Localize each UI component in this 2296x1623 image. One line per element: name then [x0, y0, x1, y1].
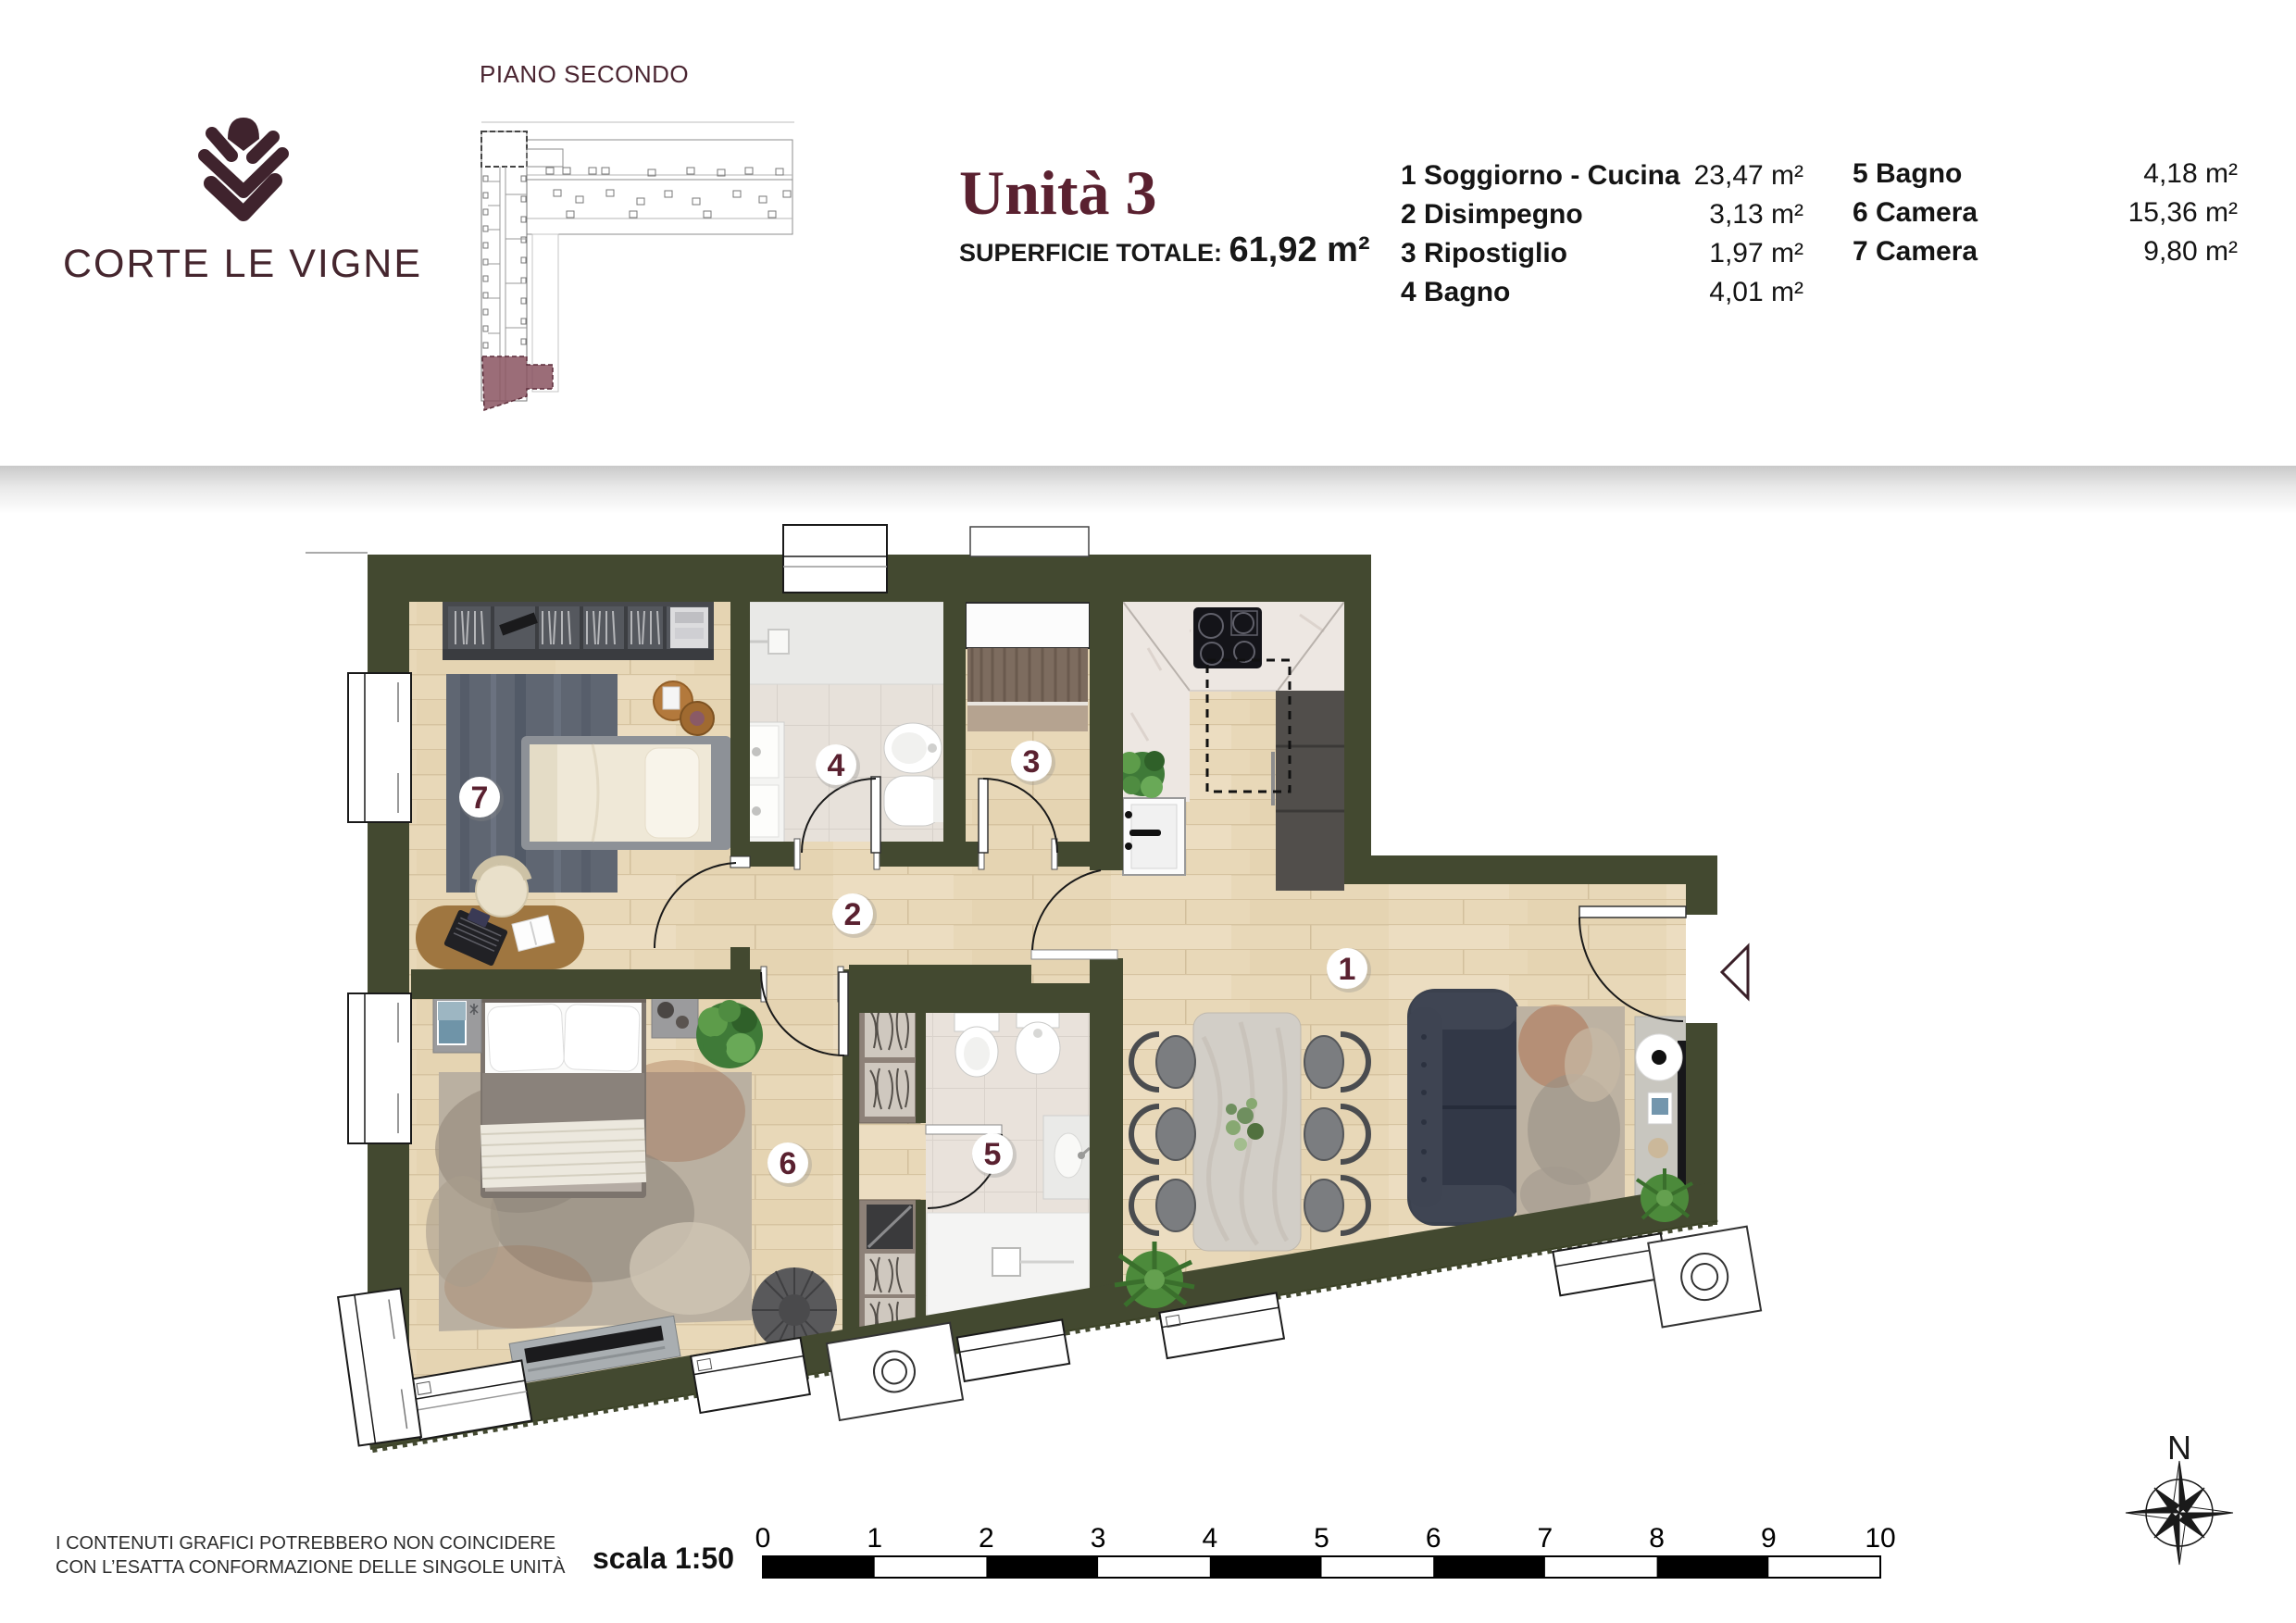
svg-text:1,97 m²: 1,97 m²: [1709, 238, 1803, 268]
svg-text:15,36 m²: 15,36 m²: [2128, 197, 2238, 228]
svg-text:4: 4: [828, 748, 845, 783]
svg-text:8: 8: [1649, 1523, 1665, 1554]
svg-text:CON L’ESATTA CONFORMAZIONE DEL: CON L’ESATTA CONFORMAZIONE DELLE SINGOLE…: [56, 1556, 566, 1578]
svg-text:scala 1:50: scala 1:50: [593, 1542, 734, 1575]
svg-text:3: 3: [1023, 744, 1041, 780]
svg-text:3 Ripostiglio: 3 Ripostiglio: [1401, 238, 1567, 268]
svg-text:4: 4: [1202, 1523, 1217, 1554]
svg-text:6: 6: [1426, 1523, 1441, 1554]
svg-text:0: 0: [755, 1523, 771, 1554]
svg-text:7: 7: [1538, 1523, 1554, 1554]
svg-text:3,13 m²: 3,13 m²: [1709, 199, 1803, 230]
svg-text:1 Soggiorno - Cucina: 1 Soggiorno - Cucina: [1401, 160, 1680, 191]
svg-text:Unità 3: Unità 3: [959, 157, 1156, 228]
svg-text:N: N: [2167, 1429, 2191, 1467]
svg-text:9,80 m²: 9,80 m²: [2143, 236, 2238, 267]
svg-text:7: 7: [471, 780, 489, 816]
svg-text:1: 1: [1339, 952, 1356, 987]
svg-text:2: 2: [979, 1523, 994, 1554]
svg-text:4,18 m²: 4,18 m²: [2143, 158, 2238, 189]
svg-text:2 Disimpegno: 2 Disimpegno: [1401, 199, 1583, 230]
svg-text:6 Camera: 6 Camera: [1853, 197, 1978, 228]
svg-text:1: 1: [867, 1523, 882, 1554]
svg-text:4,01 m²: 4,01 m²: [1709, 277, 1803, 307]
svg-text:10: 10: [1865, 1523, 1895, 1554]
svg-text:CORTE LE VIGNE: CORTE LE VIGNE: [63, 242, 422, 286]
svg-text:2: 2: [844, 897, 862, 932]
svg-text:4 Bagno: 4 Bagno: [1401, 277, 1510, 307]
svg-text:7 Camera: 7 Camera: [1853, 236, 1978, 267]
svg-text:5: 5: [1314, 1523, 1329, 1554]
svg-text:5 Bagno: 5 Bagno: [1853, 158, 1962, 189]
svg-text:6: 6: [780, 1146, 797, 1181]
svg-text:3: 3: [1091, 1523, 1106, 1554]
svg-text:PIANO SECONDO: PIANO SECONDO: [480, 60, 689, 88]
svg-text:9: 9: [1761, 1523, 1777, 1554]
svg-text:23,47 m²: 23,47 m²: [1694, 160, 1803, 191]
svg-text:I CONTENUTI GRAFICI POTREBBERO: I CONTENUTI GRAFICI POTREBBERO NON COINC…: [56, 1533, 555, 1554]
svg-text:5: 5: [984, 1137, 1002, 1172]
